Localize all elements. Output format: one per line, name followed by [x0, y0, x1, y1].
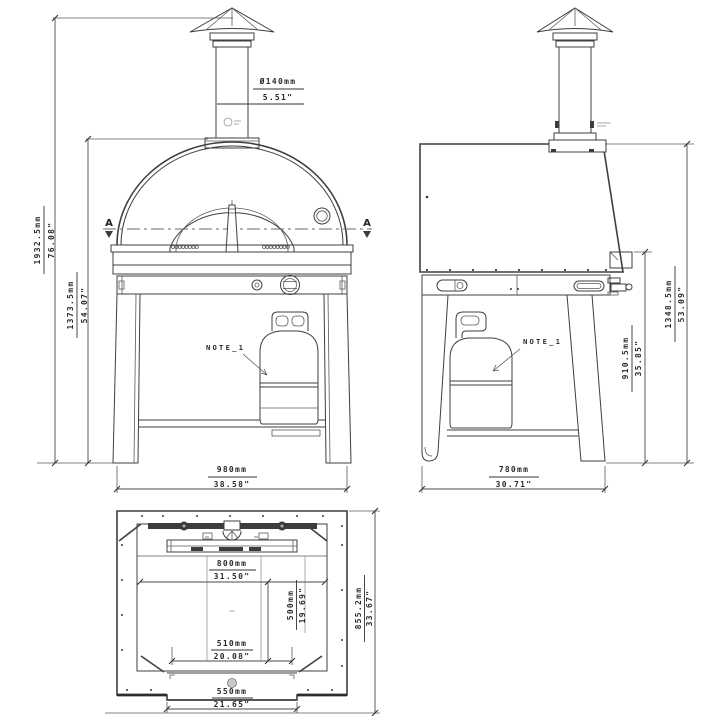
plan-width-in-label: 31.50" [214, 572, 251, 581]
note-label-front: NOTE_1 [206, 343, 245, 352]
thermometer-icon [314, 208, 330, 224]
technical-drawing-sheet: Ø140mm 5.51" A A [0, 0, 720, 720]
front-body-height-in-label: 54.07" [80, 287, 89, 324]
side-overall-height-mm-label: 1348.5mm [664, 280, 673, 329]
stand-side [422, 295, 605, 461]
dim-plan-door: 510mm 20.08" [169, 639, 295, 665]
side-counter-height-mm-label: 910.5mm [621, 337, 630, 380]
chimney-logo-badge-icon [224, 118, 241, 126]
plan-overall-depth-mm-label: 855.2mm [354, 587, 363, 630]
dim-plan-depth: 500mm 19.69" [265, 579, 307, 664]
side-counter-height-in-label: 35.85" [634, 340, 643, 377]
plan-hinge-mechanism [137, 521, 327, 556]
igniter-button-icon [252, 280, 262, 290]
control-knob-icon [281, 276, 300, 295]
note-label-side: NOTE_1 [523, 337, 562, 346]
dim-front-heights: 1932.5mm 76.08" 1373.5mm 54.07" [33, 15, 233, 466]
handle-slot-left [437, 280, 467, 291]
dim-side-heights: 910.5mm 35.85" 1348.5mm 53.09" [605, 141, 694, 466]
dim-plan-width: 800mm 31.50" [137, 559, 328, 585]
section-arrow-left-icon [105, 231, 113, 238]
front-width-in-label: 38.58" [214, 480, 251, 489]
side-depth-mm-label: 780mm [499, 465, 530, 474]
front-width-mm-label: 980mm [217, 465, 248, 474]
front-view: Ø140mm 5.51" A A [33, 8, 372, 493]
section-label-right: A [363, 218, 371, 229]
plan-overall-depth-in-label: 33.67" [365, 590, 374, 627]
oven-body-side [420, 133, 632, 272]
plan-door-in-label: 20.08" [214, 652, 251, 661]
gas-tank-front [260, 312, 318, 424]
plan-depth-in-label: 19.69" [298, 587, 307, 624]
plan-width-mm-label: 800mm [217, 559, 248, 568]
gas-tank-side [450, 312, 512, 428]
chimney-diameter-in-label: 5.51" [263, 93, 294, 102]
counter-side [422, 269, 632, 295]
oven-technical-drawing: Ø140mm 5.51" A A [0, 0, 720, 720]
side-depth-in-label: 30.71" [496, 480, 533, 489]
plan-opening-in-label: 21.65" [214, 700, 251, 709]
section-arrow-right-icon [363, 231, 371, 238]
plan-door-mm-label: 510mm [217, 639, 248, 648]
note-callout-front: NOTE_1 [206, 343, 267, 375]
dim-side-depth: 780mm 30.71" [419, 465, 608, 493]
counter-front [111, 245, 353, 295]
front-body-height-mm-label: 1373.5mm [66, 281, 75, 330]
chimney-diameter-mm-label: Ø140mm [259, 76, 297, 86]
plan-depth-mm-label: 500mm [286, 590, 295, 621]
gas-connector-icon [608, 278, 632, 295]
plan-view: 800mm 31.50" 500mm 19.69" 510mm 20.08" [105, 508, 380, 716]
section-label-left: A [105, 218, 113, 229]
oven-door-front [170, 200, 294, 252]
front-overall-height-mm-label: 1932.5mm [33, 216, 42, 265]
counter-rivets [426, 269, 607, 271]
front-overall-height-in-label: 76.08" [47, 222, 56, 259]
vent-holes-left [172, 246, 199, 249]
dim-chimney-diameter: Ø140mm 5.51" [217, 76, 304, 104]
handle-slot-right [574, 281, 604, 291]
vent-holes-right [263, 246, 290, 249]
dim-front-width: 980mm 38.58" [114, 465, 350, 493]
side-overall-height-in-label: 53.09" [677, 286, 686, 323]
oven-dome-front: A A [103, 142, 372, 252]
dim-plan-overall-depth: 855.2mm 33.67" [105, 508, 380, 716]
plan-opening-mm-label: 550mm [217, 687, 248, 696]
side-view: NOTE_1 780mm 30.71" 910.5mm [419, 8, 694, 493]
chimney-side [537, 8, 613, 133]
